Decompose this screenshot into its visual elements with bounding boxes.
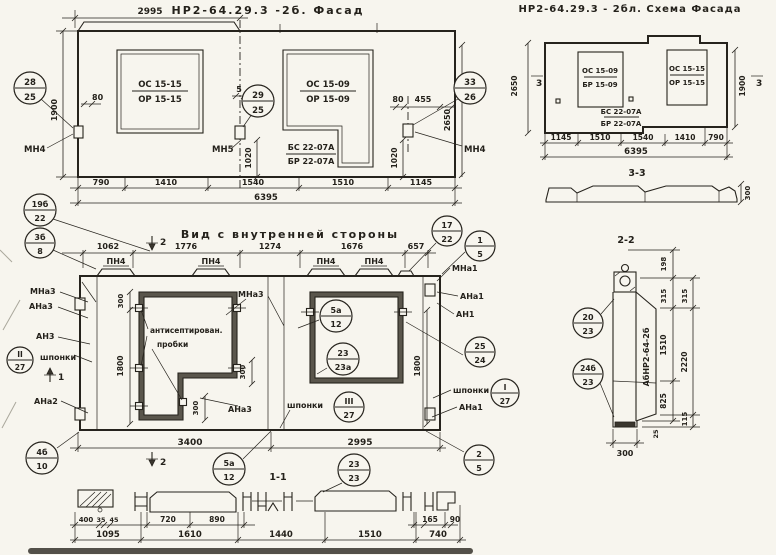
svg-text:10: 10: [36, 462, 48, 471]
section-mark-2-bottom: 2: [146, 452, 166, 468]
dim-1020-right: 1020: [390, 148, 399, 169]
callout-24b-23: 24б 23: [573, 359, 603, 389]
drawing-sheet: НР2-64.29.3 -2б. Фасад 2995 ОС 15-15 ОР …: [0, 0, 776, 555]
section-3-3-profile: [546, 186, 737, 202]
label-mna3-mid: МНа3: [238, 290, 264, 299]
label-shponki-mid: шпонки: [287, 401, 323, 410]
callout-23-23: 23 23: [338, 454, 370, 486]
scheme-window2-bot: ОР 15-15: [669, 79, 705, 87]
dim-1020-left: 1020: [244, 148, 253, 169]
pn4-labels: ПН4 ПН4 ПН4 ПН4: [103, 257, 387, 266]
callout-29-25: 29 25: [242, 85, 274, 117]
svg-text:4б: 4б: [36, 447, 48, 457]
callout-25-24: 25 24: [465, 337, 495, 367]
s22-dim-825: 825: [659, 393, 668, 409]
dim-300-bot: 300: [192, 401, 200, 416]
note-antiseptic-line1: антисептирован.: [150, 326, 223, 335]
scheme-dim-total: 6395: [624, 147, 648, 157]
section-1-1-title: 1-1: [269, 472, 286, 483]
svg-text:2: 2: [160, 458, 166, 468]
svg-text:19б: 19б: [32, 199, 49, 209]
label-mna3-left: МНа3: [30, 287, 56, 296]
s11-dim-1510: 1510: [358, 530, 382, 540]
scheme-window1-top: ОС 15-09: [582, 67, 618, 75]
panel-mark-2-2: АбНР2-64-2б: [641, 327, 651, 386]
inner-dim-1274: 1274: [259, 242, 282, 251]
label-ana1-bot: АНа1: [459, 403, 483, 412]
s11-dim-90: 90: [450, 515, 460, 524]
svg-text:12: 12: [330, 320, 341, 329]
dim-300-top: 300: [117, 294, 125, 309]
scheme-window2-top: ОС 15-15: [669, 65, 705, 73]
scheme-dim-1510: 1510: [590, 133, 611, 142]
svg-text:28: 28: [24, 78, 36, 88]
inner-title: Вид с внутренней стороны: [181, 228, 399, 241]
facade-dim-1510: 1510: [332, 178, 355, 187]
scheme-dim-1410: 1410: [675, 133, 696, 142]
anchor-label-mn4-right: МН4: [464, 145, 486, 155]
s22-dim-300: 300: [617, 449, 634, 458]
svg-text:2: 2: [160, 238, 166, 248]
pn4-label-3: ПН4: [317, 257, 336, 266]
s11-dim-400: 400: [79, 516, 94, 524]
section-2-2: 2-2 АбНР2-64-2б 198 315 1510 825 315 222…: [573, 235, 700, 458]
inner-dim-2995: 2995: [347, 438, 372, 448]
inner-dim-1776: 1776: [175, 242, 198, 251]
svg-text:12: 12: [223, 473, 234, 482]
label-ana3-mid: АНа3: [228, 405, 252, 414]
s22-dim-315a: 315: [660, 289, 668, 304]
s22-dim-198: 198: [660, 257, 668, 272]
anchor-label-mn4-left: МН4: [24, 145, 46, 155]
svg-text:33: 33: [464, 78, 476, 88]
facade-drawing: НР2-64.29.3 -2б. Фасад 2995 ОС 15-15 ОР …: [14, 4, 486, 206]
s11-dim-1095: 1095: [96, 530, 120, 540]
svg-text:22: 22: [441, 235, 452, 244]
inner-dim-1676: 1676: [341, 242, 364, 251]
s11-dim-165: 165: [422, 515, 438, 524]
section-1-1-profile: [78, 490, 455, 512]
callout-19b-22: 19б 22: [24, 194, 56, 226]
pn4-label-4: ПН4: [365, 257, 384, 266]
anchor-plate-mid: [235, 126, 245, 139]
anchor-plate-left: [74, 126, 83, 138]
label-shponki-left: шпонки: [40, 353, 76, 362]
scheme-dim-1900: 1900: [738, 76, 747, 97]
section-mark-1: 1: [44, 368, 64, 383]
label-an1: АН1: [456, 310, 475, 319]
facade-dim-2995: 2995: [137, 7, 162, 17]
svg-text:III: III: [345, 397, 354, 406]
svg-text:24б: 24б: [580, 364, 596, 373]
svg-text:27: 27: [500, 397, 510, 406]
s11-dim-720: 720: [160, 515, 176, 524]
facade-dim-total: 6395: [254, 193, 278, 203]
facade-title: НР2-64.29.3 -2б. Фасад: [171, 4, 364, 17]
svg-text:29: 29: [252, 91, 264, 101]
svg-text:22: 22: [34, 214, 45, 223]
svg-text:20: 20: [582, 313, 594, 322]
svg-text:23а: 23а: [335, 363, 352, 372]
callout-33-26: 33 26: [454, 72, 486, 104]
facade-block-mark-top: БС 22-07А: [288, 143, 335, 152]
scheme-dim-790: 790: [708, 133, 724, 142]
svg-text:1: 1: [58, 373, 64, 383]
label-ana1-top: АНа1: [460, 292, 484, 301]
s22-dim-115: 115: [681, 412, 689, 427]
callout-5a-12: 5а 12: [320, 300, 352, 332]
facade-dim-1410: 1410: [155, 178, 178, 187]
dim-1800-right: 1800: [413, 356, 422, 377]
section-3-3-label: 3-3: [628, 168, 645, 179]
label-ana3-left: АНа3: [29, 302, 53, 311]
callout-28-25: 28 25: [14, 72, 46, 104]
dim-80-left: 80: [92, 93, 104, 102]
scheme-dim-2650: 2650: [510, 76, 519, 97]
svg-text:1: 1: [477, 236, 483, 245]
facade-dim-1145: 1145: [410, 178, 433, 187]
callout-2-5: 2 5: [464, 445, 494, 475]
svg-text:23: 23: [348, 474, 359, 483]
label-mna1: МНа1: [452, 264, 478, 273]
scheme-dim-1540: 1540: [633, 133, 654, 142]
svg-text:27: 27: [15, 363, 25, 372]
scheme-window1-bot: БР 15-09: [582, 81, 617, 89]
callout-23-23a: 23 23а: [327, 343, 359, 375]
facade-window1-mark-bot: ОР 15-15: [138, 95, 182, 105]
svg-text:23: 23: [582, 378, 593, 387]
svg-text:2: 2: [476, 450, 482, 459]
svg-text:3б: 3б: [34, 232, 46, 242]
scheme-block-bot: БР 22-07А: [601, 120, 642, 128]
facade-dim-790: 790: [93, 178, 110, 187]
svg-text:23: 23: [337, 349, 348, 358]
inner-dim-3400: 3400: [177, 438, 202, 448]
svg-text:II: II: [17, 350, 23, 359]
antiseptic-plugs: [130, 305, 412, 410]
s22-dim-2220: 2220: [680, 352, 689, 373]
s22-dim-1510: 1510: [659, 335, 668, 356]
svg-text:25: 25: [24, 93, 36, 103]
facade-dim-1540: 1540: [242, 178, 265, 187]
dim-5-mid: 5: [236, 85, 242, 94]
svg-text:25: 25: [474, 342, 486, 351]
svg-text:5: 5: [477, 250, 483, 259]
s11-dim-45: 45: [109, 516, 119, 524]
label-an3: АН3: [36, 332, 54, 341]
callout-3b-8: 3б 8: [25, 228, 55, 258]
svg-text:23: 23: [348, 460, 359, 469]
section-2-2-title: 2-2: [617, 235, 634, 246]
scheme-dim-1145: 1145: [551, 133, 572, 142]
facade-window2-mark-top: ОС 15-09: [306, 80, 350, 90]
svg-text:17: 17: [441, 221, 452, 230]
svg-text:25: 25: [252, 106, 264, 116]
scheme-marker-3-right: 3: [756, 79, 762, 89]
anchor-plate-right: [403, 124, 413, 137]
callout-I-27: I 27: [491, 379, 519, 407]
section-mark-2-top: 2: [146, 236, 166, 250]
note-antiseptic-line2: пробки: [157, 340, 188, 349]
callout-20-23: 20 23: [573, 308, 603, 338]
callout-5a-12-bottom: 5а 12: [213, 453, 245, 485]
scheme-marker-3-left: 3: [536, 79, 542, 89]
label-shponki-right: шпонки: [453, 386, 489, 395]
dim-1900-facade: 1900: [50, 98, 59, 121]
svg-text:5: 5: [476, 464, 482, 473]
inner-dim-657: 657: [408, 242, 425, 251]
pn4-label-1: ПН4: [107, 257, 126, 266]
dim-80-right: 80: [392, 95, 404, 104]
s22-dim-25: 25: [652, 429, 660, 439]
inner-view-drawing: Вид с внутренней стороны 1062 1776 1274 …: [7, 194, 519, 492]
callout-II-27: II 27: [7, 347, 33, 373]
svg-text:8: 8: [37, 247, 43, 256]
scheme-drawing: НР2-64.29.3 - 2бл. Схема Фасада ОС 15-09…: [510, 3, 763, 205]
label-ana2: АНа2: [34, 397, 58, 406]
facade-block-mark-bot: БР 22-07А: [288, 157, 335, 166]
s11-dim-35: 35: [96, 516, 106, 524]
scheme-title: НР2-64.29.3 - 2бл. Схема Фасада: [519, 3, 742, 15]
facade-window2-mark-bot: ОР 15-09: [306, 95, 350, 105]
callout-17-22: 17 22: [432, 216, 462, 246]
callout-1-5: 1 5: [465, 231, 495, 261]
inner-dim-1062: 1062: [97, 242, 119, 251]
scheme-block-top: БС 22-07А: [601, 108, 642, 116]
anchor-label-mn5: МН5: [212, 145, 234, 155]
svg-text:5а: 5а: [224, 459, 235, 468]
facade-window1-mark-top: ОС 15-15: [138, 80, 182, 90]
svg-text:24: 24: [474, 356, 486, 365]
svg-text:27: 27: [343, 411, 354, 420]
callout-III-27: III 27: [334, 392, 364, 422]
svg-text:23: 23: [582, 327, 593, 336]
s11-dim-740: 740: [429, 530, 447, 540]
s11-dim-1610: 1610: [178, 530, 202, 540]
s22-dim-315b: 315: [681, 289, 689, 304]
scheme-dim-300: 300: [744, 186, 752, 201]
dim-1800-left: 1800: [116, 356, 125, 377]
svg-text:26: 26: [464, 93, 476, 103]
s11-dim-890: 890: [209, 515, 225, 524]
svg-text:5а: 5а: [331, 306, 342, 315]
section-1-1: 1-1 400 35 45 720 890 165 90 1095 1: [70, 472, 466, 543]
dim-455: 455: [415, 95, 432, 104]
s11-dim-1440: 1440: [269, 530, 293, 540]
dim-2650-facade: 2650: [443, 108, 452, 131]
svg-text:I: I: [504, 383, 507, 392]
pn4-label-2: ПН4: [202, 257, 221, 266]
callout-4b-10: 4б 10: [26, 442, 58, 474]
dim-300-step: 300: [239, 365, 247, 380]
